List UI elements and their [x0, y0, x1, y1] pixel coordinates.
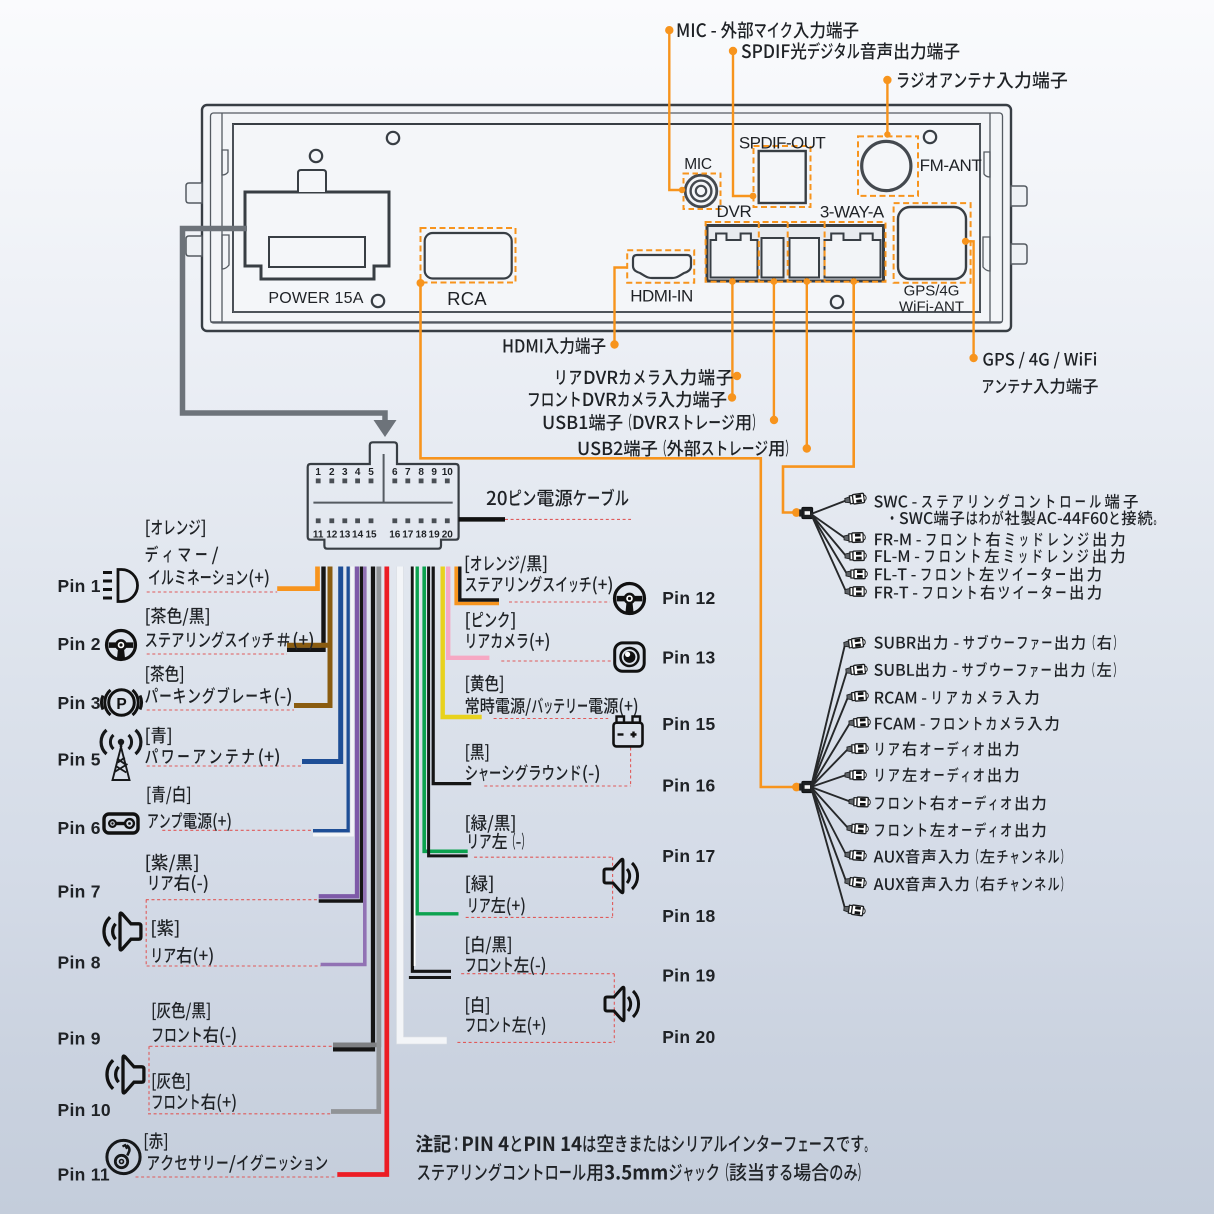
svg-text:Pin 13: Pin 13	[662, 648, 715, 668]
svg-text:3: 3	[342, 467, 348, 478]
svg-text:13: 13	[339, 530, 351, 541]
svg-text:11: 11	[313, 530, 324, 541]
svg-text:Pin 18: Pin 18	[662, 906, 715, 926]
svg-text:14: 14	[352, 530, 364, 541]
svg-text:Pin 17: Pin 17	[662, 846, 715, 866]
svg-text:Pin 7: Pin 7	[58, 882, 101, 902]
svg-text:WiFi-ANT: WiFi-ANT	[899, 299, 964, 316]
svg-text:Pin 20: Pin 20	[662, 1027, 715, 1047]
svg-text:18: 18	[416, 530, 428, 541]
svg-text:6: 6	[392, 467, 398, 478]
svg-text:Pin 6: Pin 6	[58, 818, 101, 838]
svg-text:Pin 9: Pin 9	[58, 1029, 101, 1049]
svg-text:19: 19	[429, 530, 441, 541]
svg-text:1: 1	[315, 467, 321, 478]
svg-text:Pin 10: Pin 10	[58, 1100, 111, 1120]
svg-text:Pin 1: Pin 1	[58, 576, 101, 596]
svg-text:3-WAY-A: 3-WAY-A	[820, 203, 885, 222]
svg-text:9: 9	[431, 467, 437, 478]
svg-text:Pin 15: Pin 15	[662, 714, 715, 734]
svg-text:Pin 5: Pin 5	[58, 750, 101, 770]
svg-text:Pin 3: Pin 3	[58, 693, 101, 713]
svg-text:5: 5	[368, 467, 374, 478]
svg-text:12: 12	[326, 530, 338, 541]
svg-text:SPDIF-OUT: SPDIF-OUT	[739, 134, 825, 153]
svg-text:2: 2	[329, 467, 335, 478]
svg-text:17: 17	[402, 530, 414, 541]
svg-text:Pin 8: Pin 8	[58, 953, 101, 973]
svg-text:Pin 19: Pin 19	[662, 966, 715, 986]
svg-text:HDMI-IN: HDMI-IN	[630, 287, 693, 306]
svg-text:Pin 12: Pin 12	[662, 588, 715, 608]
svg-text:GPS/4G: GPS/4G	[904, 283, 960, 300]
svg-text:10: 10	[442, 467, 454, 478]
svg-text:Pin 16: Pin 16	[662, 776, 715, 796]
svg-text:15: 15	[365, 530, 377, 541]
svg-text:Pin 2: Pin 2	[58, 634, 101, 654]
svg-text:RCA: RCA	[447, 288, 487, 309]
svg-text:FM-ANT: FM-ANT	[920, 156, 982, 175]
svg-text:20: 20	[442, 530, 454, 541]
svg-text:Pin 11: Pin 11	[58, 1165, 110, 1185]
svg-text:7: 7	[405, 467, 411, 478]
svg-text:P: P	[116, 696, 126, 713]
svg-text:POWER 15A: POWER 15A	[268, 290, 363, 307]
svg-text:MIC: MIC	[684, 156, 712, 173]
svg-text:16: 16	[389, 530, 401, 541]
svg-text:8: 8	[418, 467, 424, 478]
svg-text:DVR: DVR	[717, 202, 752, 221]
svg-text:4: 4	[355, 467, 361, 478]
